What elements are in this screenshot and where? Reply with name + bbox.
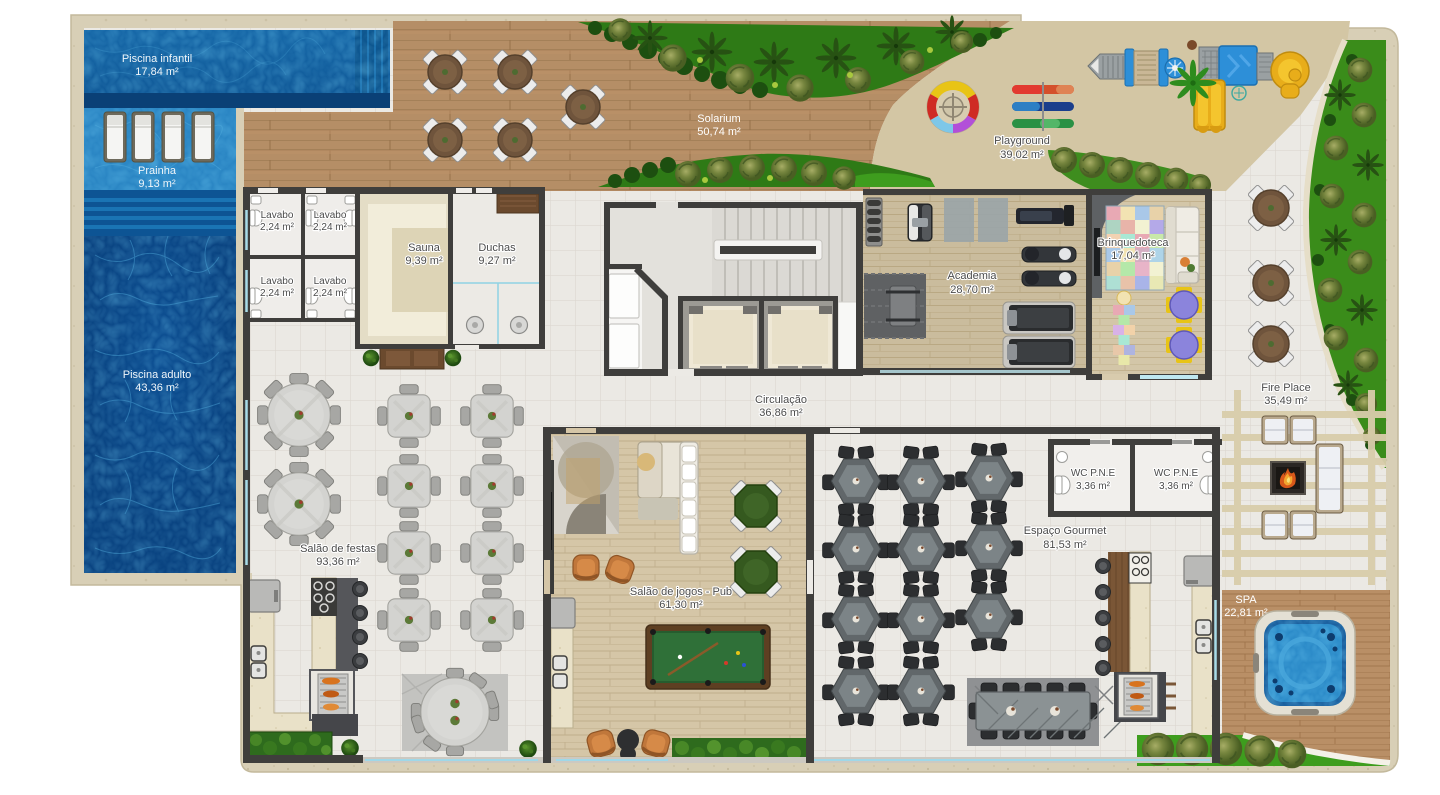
svg-text:Brinquedoteca: Brinquedoteca: [1098, 237, 1170, 249]
svg-text:36,86 m²: 36,86 m²: [759, 407, 803, 419]
svg-text:Espaço Gourmet: Espaço Gourmet: [1024, 525, 1107, 537]
svg-text:3,36 m²: 3,36 m²: [1076, 481, 1111, 492]
svg-text:2,24 m²: 2,24 m²: [260, 288, 295, 299]
svg-text:61,30 m²: 61,30 m²: [659, 599, 703, 611]
svg-text:Duchas: Duchas: [478, 242, 516, 254]
svg-text:35,49 m²: 35,49 m²: [1264, 395, 1308, 407]
svg-text:2,24 m²: 2,24 m²: [313, 222, 348, 233]
svg-text:Salão de jogos - Pub: Salão de jogos - Pub: [630, 586, 732, 598]
svg-text:81,53 m²: 81,53 m²: [1043, 539, 1087, 551]
svg-text:Prainha: Prainha: [138, 165, 177, 177]
svg-text:WC P.N.E: WC P.N.E: [1154, 468, 1199, 479]
svg-text:Fire Place: Fire Place: [1261, 382, 1311, 394]
svg-text:Piscina infantil: Piscina infantil: [122, 53, 192, 65]
svg-text:17,84 m²: 17,84 m²: [135, 66, 179, 78]
svg-text:Lavabo: Lavabo: [314, 276, 347, 287]
svg-text:43,36 m²: 43,36 m²: [135, 382, 179, 394]
svg-text:Circulação: Circulação: [755, 394, 807, 406]
svg-text:9,13 m²: 9,13 m²: [138, 178, 176, 190]
svg-text:28,70 m²: 28,70 m²: [950, 284, 994, 296]
svg-text:Sauna: Sauna: [408, 242, 441, 254]
svg-text:2,24 m²: 2,24 m²: [260, 222, 295, 233]
svg-text:Salão de festas: Salão de festas: [300, 543, 376, 555]
svg-text:39,02 m²: 39,02 m²: [1000, 149, 1044, 161]
svg-text:Lavabo: Lavabo: [261, 210, 294, 221]
svg-text:Lavabo: Lavabo: [261, 276, 294, 287]
svg-text:Piscina adulto: Piscina adulto: [123, 369, 192, 381]
svg-text:2,24 m²: 2,24 m²: [313, 288, 348, 299]
svg-text:3,36 m²: 3,36 m²: [1159, 481, 1194, 492]
svg-text:Playground: Playground: [994, 135, 1050, 147]
svg-text:9,27 m²: 9,27 m²: [478, 255, 516, 267]
svg-text:93,36 m²: 93,36 m²: [316, 556, 360, 568]
svg-text:17,04 m²: 17,04 m²: [1111, 250, 1155, 262]
svg-text:SPA: SPA: [1235, 594, 1257, 606]
svg-text:50,74 m²: 50,74 m²: [697, 126, 741, 138]
svg-text:Academia: Academia: [948, 270, 998, 282]
svg-text:Lavabo: Lavabo: [314, 210, 347, 221]
svg-text:WC P.N.E: WC P.N.E: [1071, 468, 1116, 479]
svg-text:Solarium: Solarium: [697, 113, 740, 125]
svg-text:9,39 m²: 9,39 m²: [405, 255, 443, 267]
svg-text:22,81 m²: 22,81 m²: [1224, 607, 1268, 619]
